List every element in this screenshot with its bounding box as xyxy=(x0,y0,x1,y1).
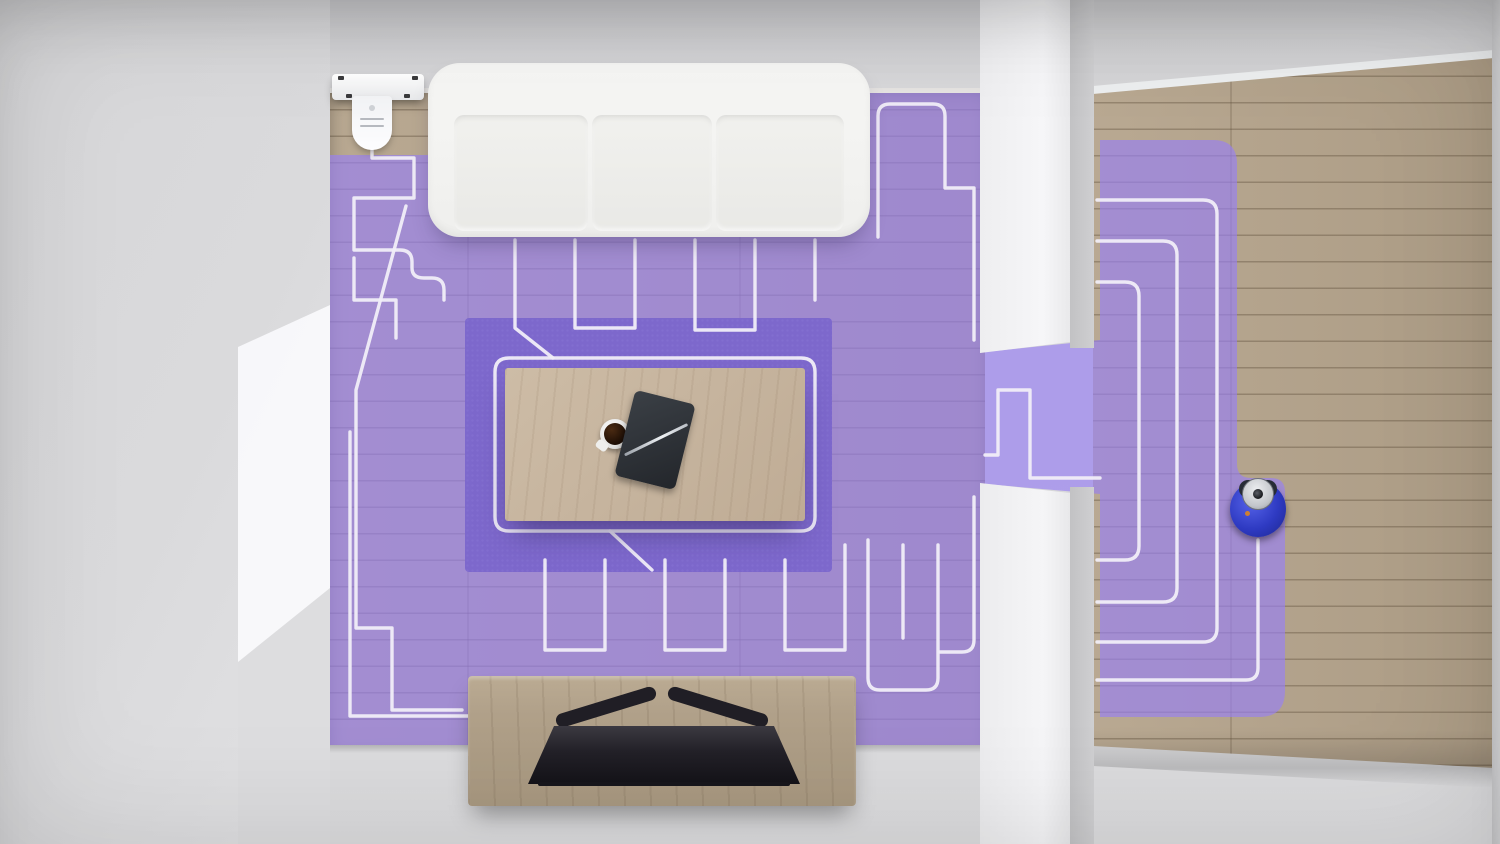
dock-foot xyxy=(338,76,344,80)
robot-camera-icon xyxy=(1253,489,1263,499)
tv-stand-arm xyxy=(554,685,658,729)
charging-dock-plate xyxy=(352,96,392,150)
dock-foot xyxy=(412,76,418,80)
tv-stand-arm xyxy=(666,685,770,729)
path-right-column-lower xyxy=(940,497,974,652)
sofa xyxy=(428,63,870,237)
path-lane-6 xyxy=(665,560,725,650)
path-left-corner xyxy=(350,432,470,716)
sofa-cushion xyxy=(592,115,712,231)
robot-sensor-dot xyxy=(1245,511,1250,516)
divider-wall-side-lower xyxy=(1070,487,1094,844)
sofa-cushion xyxy=(454,115,588,231)
path-lane-7 xyxy=(785,545,845,650)
divider-wall-upper xyxy=(980,0,1070,353)
robot-vacuum xyxy=(1230,481,1286,537)
coverage-doorway xyxy=(985,340,1100,494)
scene-room-render xyxy=(0,0,1500,844)
notebook xyxy=(614,390,695,490)
path-rug-diagonal xyxy=(610,531,652,570)
right-edge-wall xyxy=(1492,0,1500,844)
path-right-column xyxy=(878,104,974,340)
path-lane-1 xyxy=(515,240,553,358)
dock-foot xyxy=(404,94,410,98)
divider-wall-side-upper xyxy=(1070,0,1094,348)
tv-console xyxy=(468,676,856,806)
dock-contact-strip xyxy=(360,118,384,120)
coffee-table xyxy=(505,368,805,521)
divider-wall-lower xyxy=(980,482,1070,844)
dock-led xyxy=(369,105,375,111)
dock-contact-strip xyxy=(360,125,384,127)
path-lane-2 xyxy=(575,240,635,328)
pen xyxy=(624,423,688,456)
tv xyxy=(528,726,800,784)
tv-base xyxy=(538,782,790,786)
sofa-cushion xyxy=(716,115,844,231)
path-lane-5 xyxy=(545,560,605,650)
dock-foot xyxy=(346,94,352,98)
path-lane-3 xyxy=(695,240,755,330)
path-left-diagonal xyxy=(356,206,462,710)
